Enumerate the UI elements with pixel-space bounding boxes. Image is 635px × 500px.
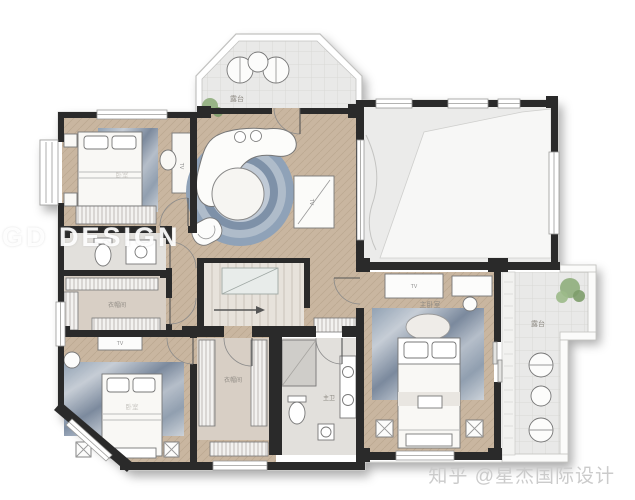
label-balcony-right: 露台 — [531, 319, 545, 328]
closet-cabinet — [199, 340, 215, 426]
label-closet-center: 衣帽间 — [224, 376, 242, 384]
toilet — [95, 244, 111, 266]
master-cabinet — [452, 276, 492, 296]
toilet — [289, 402, 305, 424]
label-master-bath: 主卫 — [323, 394, 335, 402]
bedroom1-wardrobe — [76, 206, 156, 224]
bed-bench — [406, 434, 452, 446]
closet-cabinet — [66, 278, 158, 290]
toilet-tank — [94, 238, 112, 244]
tv-label: TV — [308, 199, 314, 206]
nightstand — [64, 193, 77, 206]
closet-cabinet — [64, 292, 78, 330]
closet-cabinet — [251, 340, 267, 426]
washer — [318, 424, 334, 440]
bay-window — [40, 140, 58, 205]
label-balcony-top: 露台 — [230, 94, 244, 103]
bath-vanity — [126, 240, 156, 264]
floor-plan-canvas: 露台 露台 衣帽间 衣帽间 主卫 主卧室 卧室 卧室 TV TV TV TV G… — [0, 0, 635, 500]
closet-cabinet — [210, 442, 268, 456]
side-table — [463, 297, 477, 311]
oval-ottoman — [406, 314, 450, 340]
tv-label: TV — [117, 341, 124, 347]
label-master-bedroom: 主卧室 — [420, 300, 441, 309]
balcony-table — [531, 386, 551, 406]
label-bedroom-bottom-left: 卧室 — [126, 402, 140, 411]
nightstand — [64, 134, 77, 147]
tv-label: TV — [411, 284, 418, 290]
desk-chair — [160, 150, 176, 170]
round-coffee-table — [212, 168, 264, 220]
label-bedroom-top-left: 卧室 — [116, 170, 130, 179]
floor-plan-svg: 露台 露台 衣帽间 衣帽间 主卫 主卧室 卧室 卧室 TV TV TV TV — [0, 0, 635, 500]
closet-cabinet — [92, 318, 160, 331]
balcony-table — [248, 52, 268, 72]
tv-label: TV — [178, 163, 184, 170]
label-closet-left: 衣帽间 — [108, 301, 126, 309]
double-vanity — [340, 356, 356, 418]
toilet-tank — [288, 396, 306, 402]
stool — [64, 352, 80, 368]
